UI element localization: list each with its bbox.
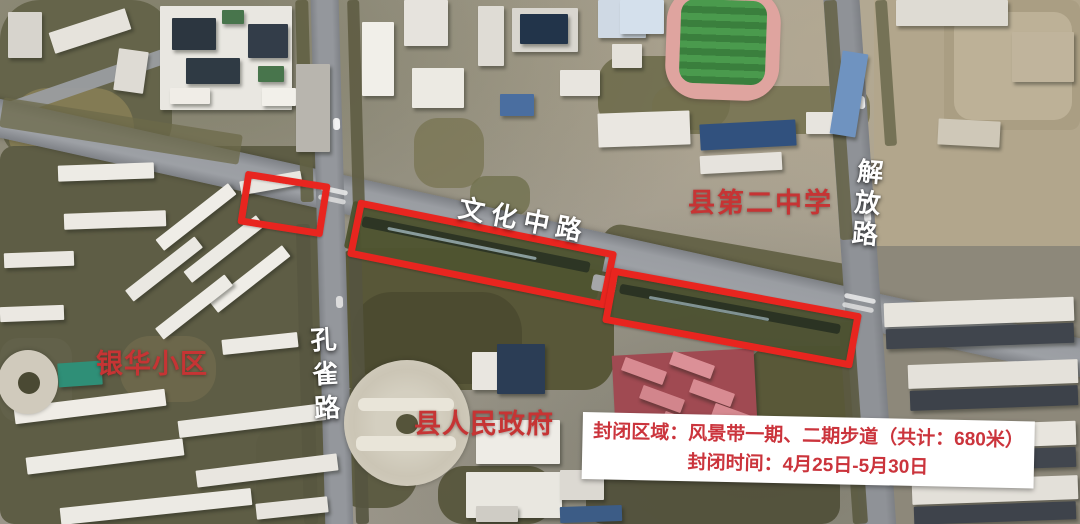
building: [896, 0, 1008, 26]
building: [937, 118, 1000, 147]
building: [620, 0, 664, 34]
building: [612, 44, 642, 68]
building: [258, 66, 284, 82]
place-label-yinhua-district: 银华小区: [96, 342, 208, 381]
building: [497, 344, 545, 394]
building: [830, 50, 869, 137]
building: [255, 496, 328, 519]
building: [699, 120, 796, 151]
building: [195, 453, 338, 487]
building: [248, 24, 288, 58]
building: [560, 505, 623, 523]
building: [910, 385, 1079, 411]
road-label-kongque: 孔雀路: [303, 325, 345, 429]
school-sports-field: [664, 0, 782, 102]
building: [262, 88, 296, 106]
building: [296, 64, 330, 152]
notice-line1: 封闭区域：风景带一期、二期步道（共计：680米）: [593, 417, 1024, 455]
small-roundabout-garden: [0, 350, 58, 414]
building: [178, 403, 327, 438]
building: [58, 162, 154, 181]
building: [478, 6, 504, 66]
notice-line2: 封闭时间：4月25日-5月30日: [687, 448, 928, 482]
building: [49, 8, 132, 54]
building: [1012, 32, 1074, 82]
building: [597, 110, 690, 147]
building: [0, 305, 64, 322]
building: [64, 210, 166, 230]
building: [560, 70, 600, 96]
building: [170, 88, 210, 104]
building: [404, 0, 448, 46]
roundabout-center: [18, 372, 40, 394]
building: [4, 251, 74, 268]
building: [914, 501, 1077, 524]
building: [520, 14, 568, 44]
place-label-county-no2-middle-school: 县第二中学: [688, 181, 833, 220]
building: [26, 438, 185, 474]
building: [886, 323, 1075, 350]
soccer-pitch: [679, 0, 768, 85]
building: [362, 22, 394, 96]
building: [412, 68, 464, 108]
building: [476, 506, 518, 522]
building: [700, 152, 783, 174]
satellite-map-poster: 文化中路 孔雀路 解放路 县第二中学 银华小区 县人民政府 封闭区域：风景带一期…: [0, 0, 1080, 524]
building: [8, 12, 42, 58]
building: [172, 18, 216, 50]
building: [908, 359, 1079, 389]
building: [221, 332, 298, 355]
building: [222, 10, 244, 24]
building: [500, 94, 534, 116]
building: [60, 488, 253, 524]
place-label-county-government: 县人民政府: [414, 402, 554, 441]
building: [113, 48, 149, 94]
closure-notice-box: 封闭区域：风景带一期、二期步道（共计：680米） 封闭时间：4月25日-5月30…: [582, 412, 1035, 488]
building: [186, 58, 240, 84]
